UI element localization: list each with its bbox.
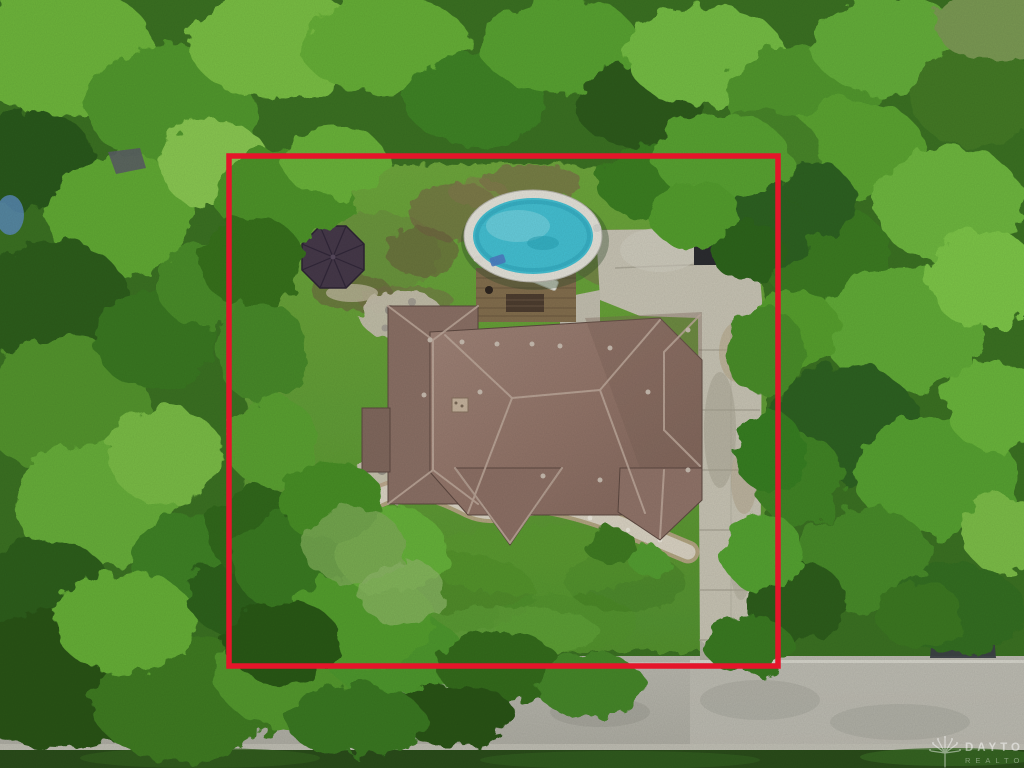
watermark-text-line2: REALTORS [965,756,1024,765]
aerial-photo-canvas: DAYTON REALTORS [0,0,1024,768]
watermark-text-line1: DAYTON [965,742,1024,754]
aerial-photo: DAYTON REALTORS [0,0,1024,768]
photo-grain [0,0,1024,768]
